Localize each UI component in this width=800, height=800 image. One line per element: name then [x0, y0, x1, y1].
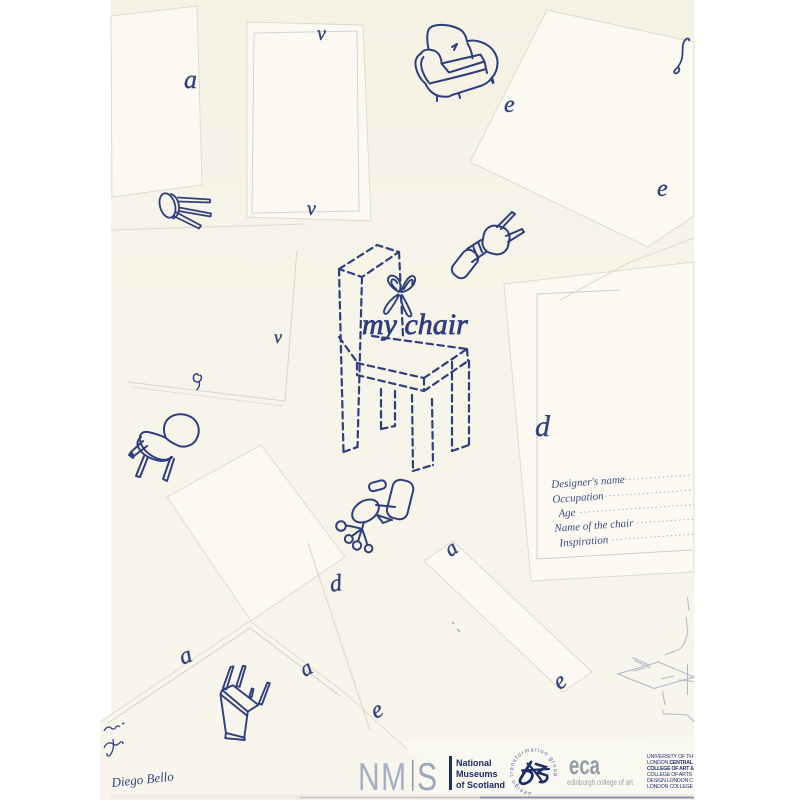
svg-text:eca: eca: [569, 750, 600, 780]
svg-text:edinburgh college of art: edinburgh college of art: [567, 778, 634, 787]
svg-text:d: d: [535, 410, 551, 443]
svg-text:v: v: [317, 23, 326, 45]
svg-text:of Scotland: of Scotland: [456, 780, 505, 790]
svg-text:v: v: [274, 327, 282, 347]
svg-text:S: S: [417, 757, 437, 799]
svg-text:e: e: [657, 176, 668, 202]
svg-text:LONDON COLLEGE: LONDON COLLEGE: [647, 784, 694, 790]
svg-text:my chair: my chair: [362, 308, 468, 341]
svg-text:v: v: [307, 198, 316, 220]
svg-text:e: e: [504, 92, 515, 118]
svg-text:National: National: [456, 758, 492, 768]
svg-text:NM: NM: [358, 757, 408, 799]
svg-text:Museums: Museums: [456, 769, 498, 779]
svg-text:a: a: [184, 65, 197, 94]
svg-text:Age: Age: [557, 507, 576, 520]
